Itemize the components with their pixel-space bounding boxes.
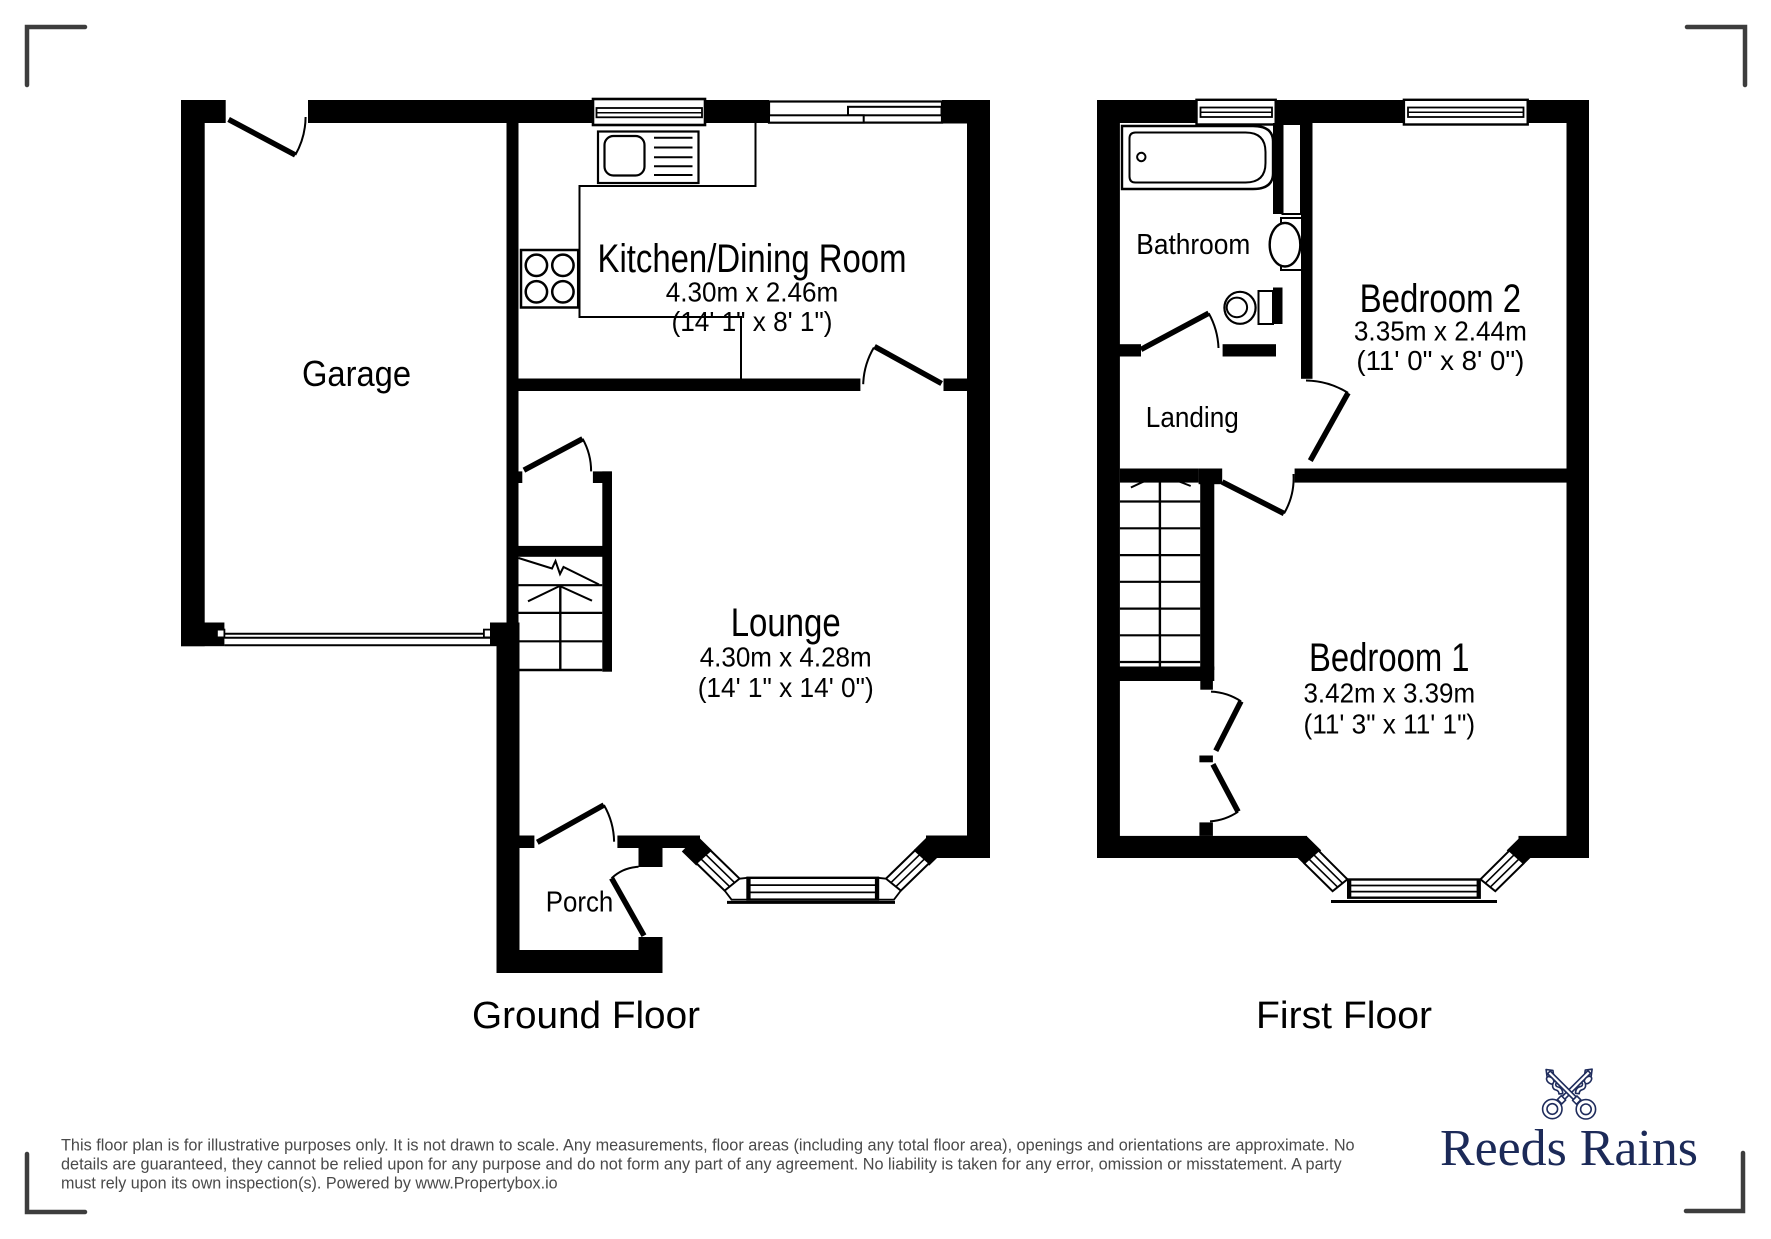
svg-text:Reeds Rains: Reeds Rains: [1440, 1120, 1698, 1177]
svg-text:(14' 1" x 8' 1"): (14' 1" x 8' 1"): [672, 306, 833, 337]
svg-text:(11' 0" x 8' 0"): (11' 0" x 8' 0"): [1356, 345, 1524, 376]
svg-text:must rely upon its own inspect: must rely upon its own inspection(s). Po…: [61, 1173, 558, 1193]
svg-text:(11' 3" x 11' 1"): (11' 3" x 11' 1"): [1304, 709, 1476, 740]
svg-text:3.35m x 2.44m: 3.35m x 2.44m: [1354, 316, 1527, 347]
svg-text:4.30m x 4.28m: 4.30m x 4.28m: [700, 642, 872, 673]
svg-text:Porch: Porch: [546, 887, 614, 919]
svg-text:Landing: Landing: [1146, 402, 1239, 434]
svg-text:4.30m x 2.46m: 4.30m x 2.46m: [666, 277, 839, 308]
svg-text:details are guaranteed, they c: details are guaranteed, they cannot be r…: [61, 1154, 1342, 1173]
svg-text:Ground Floor: Ground Floor: [472, 995, 700, 1037]
svg-text:Garage: Garage: [302, 353, 411, 394]
svg-text:(14' 1" x 14' 0"): (14' 1" x 14' 0"): [698, 672, 874, 703]
svg-text:This floor plan is for illustr: This floor plan is for illustrative purp…: [61, 1135, 1355, 1154]
svg-text:Bedroom 2: Bedroom 2: [1360, 277, 1522, 321]
svg-text:Kitchen/Dining Room: Kitchen/Dining Room: [598, 237, 907, 281]
svg-text:Bedroom 1: Bedroom 1: [1309, 636, 1470, 680]
svg-text:First Floor: First Floor: [1256, 995, 1432, 1037]
svg-text:Bathroom: Bathroom: [1136, 229, 1250, 261]
svg-text:Lounge: Lounge: [731, 601, 841, 645]
svg-text:3.42m x 3.39m: 3.42m x 3.39m: [1304, 678, 1476, 709]
